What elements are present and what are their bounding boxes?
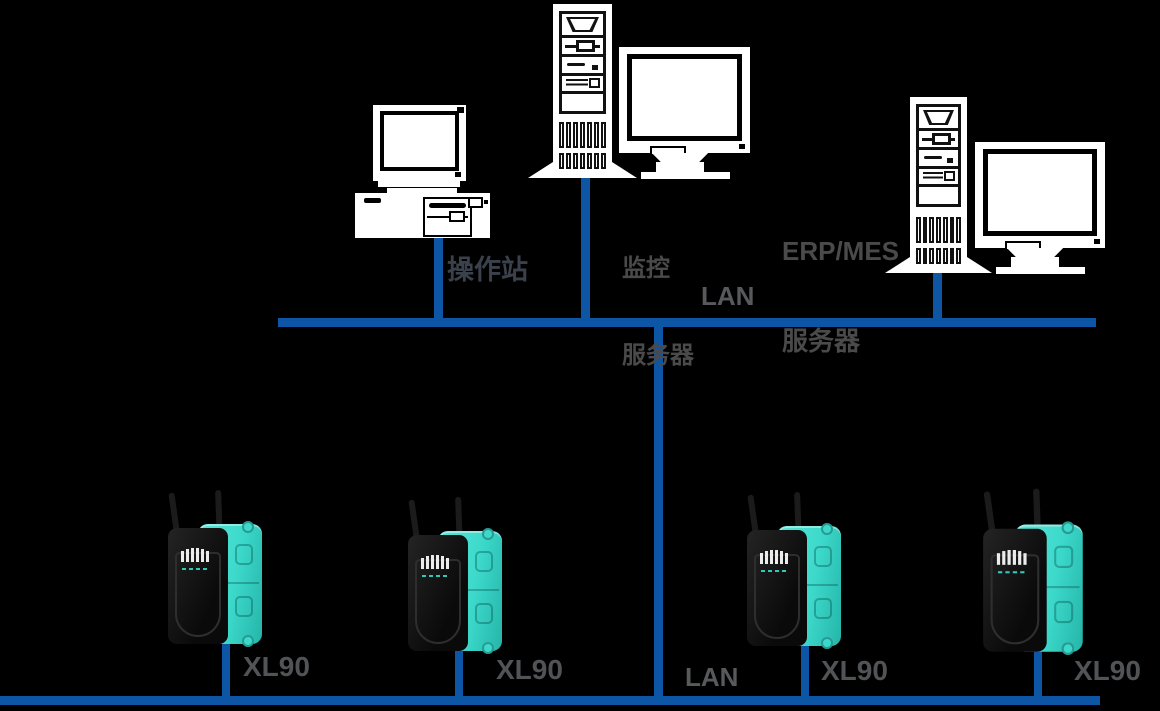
monitoring-server-monitor-icon	[619, 47, 750, 153]
network-topology-diagram: 操作站 监控 服务器	[0, 0, 1160, 711]
case-ports	[468, 197, 483, 208]
erp-server-link-line	[933, 270, 942, 322]
xl90-device	[747, 492, 843, 650]
vent-slots	[181, 548, 209, 562]
xl90-device	[168, 490, 264, 648]
monitor-power-led	[739, 144, 745, 149]
tower-bay-floppy	[562, 57, 603, 76]
tower-bay-cd	[562, 38, 603, 57]
xl90-label: XL90	[821, 655, 888, 687]
lan-bottom-label: LAN	[685, 662, 738, 693]
tower-bay-blank	[562, 94, 603, 111]
monitoring-server-tower-icon	[553, 4, 612, 178]
monitoring-server-label: 监控 服务器	[622, 196, 694, 428]
erp-server-monitor-icon	[975, 142, 1105, 248]
case-drive-bay	[423, 197, 472, 237]
monitor-base	[996, 267, 1085, 274]
lan-bottom-bus-line	[0, 696, 1100, 705]
monitoring-server-link-line	[581, 176, 590, 322]
tower-bay-grille	[919, 107, 958, 131]
lan-top-label: LAN	[701, 281, 754, 312]
monitor-pedestal	[648, 153, 712, 162]
tower-bay-floppy	[919, 150, 958, 169]
tower-bays	[559, 11, 606, 114]
xl90-4-link-line	[1034, 650, 1042, 700]
monitor-stand	[378, 181, 460, 187]
xl90-device	[983, 489, 1085, 656]
xl90-label: XL90	[496, 654, 563, 686]
erp-server-tower-icon	[910, 97, 967, 273]
tower-foot	[967, 257, 992, 273]
tower-bay-vent	[919, 169, 958, 187]
monitor-stem	[1011, 257, 1059, 267]
device-front-panel	[747, 530, 807, 646]
monitor-base	[641, 172, 730, 179]
device-front-panel	[408, 535, 468, 651]
workstation-link-line	[434, 236, 443, 322]
vent-slots	[760, 550, 788, 564]
monitor-power-led	[455, 172, 461, 177]
monitor-power-led	[1094, 239, 1100, 244]
tower-bay-cd	[919, 131, 958, 150]
tower-bay-grille	[562, 14, 603, 38]
workstation-case-icon	[355, 193, 490, 238]
device-front-panel	[168, 528, 228, 644]
tower-bay-vent	[562, 76, 603, 94]
xl90-device	[408, 497, 504, 655]
case-vent	[364, 198, 381, 203]
monitor-pedestal	[1003, 248, 1067, 257]
tower-grille-row	[916, 248, 961, 264]
vent-slots	[421, 555, 449, 569]
workstation-monitor-icon	[373, 105, 466, 181]
tower-foot	[528, 162, 553, 178]
erp-mes-server-label: ERP/MES 服务器	[782, 176, 899, 416]
drive-slot	[429, 203, 466, 208]
workstation-label: 操作站	[447, 248, 528, 287]
tower-grille-row	[559, 153, 606, 169]
monitor-screen	[983, 149, 1097, 236]
monitor-stem	[656, 162, 704, 172]
tower-grille-row	[559, 122, 606, 148]
tower-bays	[916, 104, 961, 207]
xl90-3-link-line	[801, 642, 809, 700]
tower-bay-blank	[919, 187, 958, 204]
tower-grille-row	[916, 217, 961, 243]
monitor-screen	[380, 111, 459, 171]
xl90-label: XL90	[1074, 655, 1141, 687]
xl90-label: XL90	[243, 651, 310, 683]
vent-slots	[997, 550, 1027, 565]
device-front-panel	[983, 529, 1047, 652]
tower-foot	[612, 162, 637, 178]
monitor-screen	[627, 54, 742, 141]
drive-button	[449, 211, 465, 222]
xl90-1-link-line	[222, 640, 230, 700]
